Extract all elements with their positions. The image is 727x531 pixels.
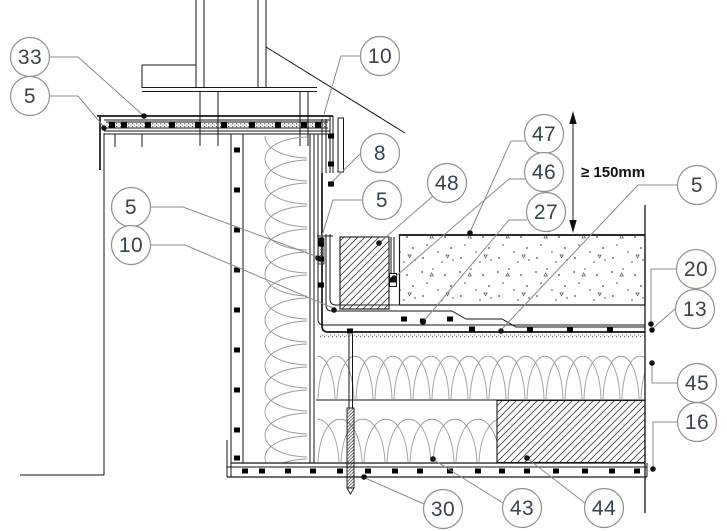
- block-hatched: [497, 401, 645, 463]
- svg-text:33: 33: [18, 46, 42, 69]
- svg-text:46: 46: [532, 161, 556, 184]
- callout-20: 20: [677, 250, 716, 289]
- callout-48: 48: [428, 164, 467, 203]
- svg-text:43: 43: [510, 497, 534, 520]
- callout-44: 44: [585, 489, 624, 528]
- callout-5-top-left: 5: [11, 77, 50, 116]
- coping-membrane-band: [106, 122, 328, 128]
- callout-45: 45: [678, 364, 717, 403]
- detail-canvas: ≥ 150mm 33 5 10 8: [0, 0, 727, 531]
- svg-text:10: 10: [119, 234, 143, 257]
- callout-5-mid: 5: [363, 181, 402, 220]
- roof-insulation: [316, 338, 645, 463]
- callout-13: 13: [676, 290, 715, 329]
- callout-30: 30: [424, 490, 463, 529]
- wall-insulation: [246, 136, 308, 463]
- svg-text:30: 30: [431, 498, 455, 521]
- insulation-upper: [317, 338, 645, 399]
- wall-fasteners: [234, 148, 240, 461]
- dimension-label: ≥ 150mm: [581, 164, 645, 181]
- callout-10-top: 10: [361, 37, 400, 76]
- callout-27: 27: [527, 193, 566, 232]
- svg-text:44: 44: [592, 497, 616, 520]
- parapet-wall: [20, 133, 314, 477]
- insulation-lower: [317, 401, 497, 462]
- svg-text:13: 13: [683, 298, 707, 321]
- svg-text:8: 8: [374, 142, 386, 165]
- flashing-bar: [338, 118, 344, 172]
- callout-16: 16: [678, 403, 717, 442]
- construction-detail-drawing: ≥ 150mm 33 5 10 8: [0, 0, 727, 531]
- svg-text:5: 5: [691, 174, 703, 197]
- height-dimension: ≥ 150mm: [569, 111, 645, 233]
- callout-5-left: 5: [112, 188, 151, 227]
- svg-text:48: 48: [435, 172, 459, 195]
- svg-text:47: 47: [532, 123, 556, 146]
- callout-46: 46: [525, 153, 564, 192]
- svg-text:45: 45: [685, 372, 709, 395]
- terrace-finish: [340, 235, 645, 309]
- roof-deck: [227, 463, 647, 477]
- svg-text:5: 5: [125, 196, 137, 219]
- callout-47: 47: [525, 115, 564, 154]
- callout-33: 33: [11, 38, 50, 77]
- paving-slab: [400, 235, 646, 305]
- svg-text:27: 27: [534, 201, 558, 224]
- callout-43: 43: [503, 489, 542, 528]
- callout-8: 8: [361, 134, 400, 173]
- svg-text:5: 5: [376, 189, 388, 212]
- svg-text:20: 20: [684, 258, 708, 281]
- callout-10-left: 10: [112, 226, 151, 265]
- separation-layer: [320, 334, 645, 338]
- svg-text:16: 16: [685, 411, 709, 434]
- svg-text:10: 10: [368, 45, 392, 68]
- svg-text:5: 5: [24, 85, 36, 108]
- deck-fasteners: [242, 469, 640, 474]
- callout-5-right: 5: [678, 166, 717, 205]
- edge-strip-hatched: [340, 237, 389, 309]
